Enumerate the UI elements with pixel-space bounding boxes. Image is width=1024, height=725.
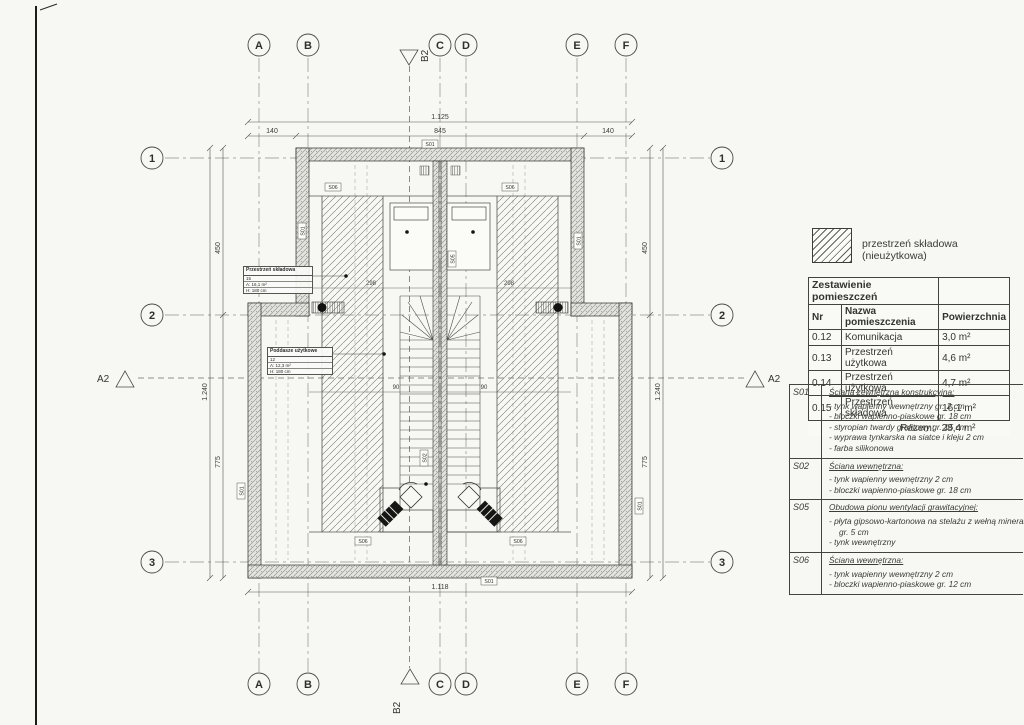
wall-tag-label: S01 bbox=[425, 142, 434, 148]
grid-label: E bbox=[573, 679, 580, 691]
scan-edge-artifact bbox=[36, 4, 57, 725]
note-title: Ściana wewnętrzna: bbox=[829, 461, 1019, 472]
table-title-spacer bbox=[939, 278, 1010, 305]
cell-nr: 0.13 bbox=[809, 346, 842, 371]
dim-label: 140 bbox=[266, 128, 278, 135]
grid-label: C bbox=[436, 40, 444, 52]
grid-label: 2 bbox=[149, 310, 155, 322]
note-code: S02 bbox=[790, 459, 822, 500]
grid-label: C bbox=[436, 679, 444, 691]
cell-nr: 0.12 bbox=[809, 330, 842, 346]
grid-label: 3 bbox=[719, 557, 725, 569]
note-code: S05 bbox=[790, 500, 822, 551]
note-code: S06 bbox=[790, 553, 822, 594]
grid-label: 2 bbox=[719, 310, 725, 322]
dim-label: 775 bbox=[215, 456, 222, 468]
note-section-s02: S02 Ściana wewnętrzna: - tynk wapienny w… bbox=[790, 459, 1023, 501]
note-line: gr. 5 cm bbox=[829, 527, 1024, 538]
section-label-b2-top: B2 bbox=[420, 49, 431, 62]
wall-tag-label: S06 bbox=[358, 539, 367, 545]
cell-area: 3,0 m² bbox=[939, 330, 1010, 346]
table-header-row: Nr Nazwa pomieszczenia Powierzchnia bbox=[809, 305, 1010, 330]
room-box-title: Przestrzeń składowa bbox=[244, 267, 312, 276]
dim-label: 450 bbox=[215, 242, 222, 254]
note-section-s05: S05 Obudowa pionu wentylacji grawitacyjn… bbox=[790, 500, 1023, 552]
dim-label: 90 bbox=[393, 385, 400, 391]
chair-right bbox=[458, 482, 481, 508]
note-line: - wyprawa tynkarska na siatce i kleju 2 … bbox=[829, 432, 1019, 443]
wall-right-upper bbox=[571, 148, 584, 316]
dim-label: 1.240 bbox=[655, 383, 662, 401]
table-title: Zestawienie pomieszczeń bbox=[809, 278, 939, 305]
note-line: - tynk wewnętrzny bbox=[829, 537, 1024, 548]
note-line: - styropian twardy grafitowy gr. 15 cm bbox=[829, 422, 1019, 433]
dim-label: 775 bbox=[642, 456, 649, 468]
note-title: Obudowa pionu wentylacji grawitacyjnej: bbox=[829, 502, 1024, 513]
note-line: - tynk wapienny wewnętrzny gr. 2 cm bbox=[829, 401, 1019, 412]
section-label-a2-right: A2 bbox=[768, 374, 781, 385]
vent-shaft-right bbox=[536, 302, 568, 313]
dim-label: 1.118 bbox=[432, 584, 449, 591]
dim-label: 1.240 bbox=[202, 383, 209, 401]
dim-label: 90 bbox=[481, 385, 488, 391]
dim-label: 845 bbox=[434, 128, 446, 135]
note-line: - bloczki wapienno-piaskowe gr. 18 cm bbox=[829, 485, 1019, 496]
col-header-nr: Nr bbox=[809, 305, 842, 330]
note-line: - tynk wapienny wewnętrzny 2 cm bbox=[829, 569, 1019, 580]
grid-label: E bbox=[573, 40, 580, 52]
cell-area: 4,6 m² bbox=[939, 346, 1010, 371]
wall-tag-label: S06 bbox=[513, 539, 522, 545]
wall-tag-label: S01 bbox=[240, 486, 246, 495]
wall-notes: S01 Ściana zewnętrzna konstrukcyjna: - t… bbox=[789, 384, 1023, 595]
grid-label: B bbox=[304, 679, 312, 691]
grid-label: A bbox=[255, 679, 263, 691]
grid-label: 1 bbox=[149, 153, 155, 165]
wall-tag-label: S06 bbox=[328, 185, 337, 191]
dim-label: 140 bbox=[602, 128, 614, 135]
col-header-area: Powierzchnia bbox=[939, 305, 1010, 330]
wall-tag-label: S01 bbox=[577, 236, 583, 245]
col-header-name: Nazwa pomieszczenia bbox=[842, 305, 939, 330]
note-title: Ściana zewnętrzna konstrukcyjna: bbox=[829, 387, 1019, 398]
scanned-floor-plan-page: { "plan": { "grid_cols": [{"label":"A"},… bbox=[0, 0, 1024, 725]
grid-label: B bbox=[304, 40, 312, 52]
wall-tag-label: S06 bbox=[505, 185, 514, 191]
wall-tag-label: S05 bbox=[451, 254, 457, 263]
legend-label: przestrzeń składowa (nieużytkowa) bbox=[862, 238, 1017, 262]
wall-tag-label: S01 bbox=[484, 579, 493, 585]
note-line: - płyta gipsowo-kartonowa na stelażu z w… bbox=[829, 516, 1024, 527]
room-box-title: Poddasze użytkowe bbox=[268, 348, 332, 357]
table-row: 0.13 Przestrzeń użytkowa 4,6 m² bbox=[809, 346, 1010, 371]
vent-shaft-left bbox=[312, 302, 344, 313]
room-annotation-box-attic: Poddasze użytkowe 12 A: 12,3 m² H: 180 c… bbox=[267, 347, 333, 375]
note-line: - bloczki wapienno-piaskowe gr. 18 cm bbox=[829, 411, 1019, 422]
section-label-a2-left: A2 bbox=[97, 374, 110, 385]
section-label-b2-bottom: B2 bbox=[392, 701, 403, 714]
note-code: S01 bbox=[790, 385, 822, 458]
cell-name: Przestrzeń użytkowa bbox=[842, 346, 939, 371]
dim-label: 1.125 bbox=[431, 114, 449, 121]
wall-tag-label: S01 bbox=[301, 226, 307, 235]
grid-label: 3 bbox=[149, 557, 155, 569]
note-line: - farba silikonowa bbox=[829, 443, 1019, 454]
grid-label: D bbox=[462, 679, 470, 691]
table-row: 0.12 Komunikacja 3,0 m² bbox=[809, 330, 1010, 346]
room-annotation-box-storage: Przestrzeń składowa 15 A: 16,1 m² H: 180… bbox=[243, 266, 313, 294]
room-box-height: H: 180 cm bbox=[244, 288, 312, 293]
note-section-s01: S01 Ściana zewnętrzna konstrukcyjna: - t… bbox=[790, 385, 1023, 459]
chair-left bbox=[399, 482, 422, 508]
wall-bottom bbox=[248, 565, 632, 578]
wall-right-lower bbox=[619, 303, 632, 578]
note-line: - bloczki wapienno-piaskowe gr. 12 cm bbox=[829, 579, 1019, 590]
grid-label: F bbox=[623, 679, 630, 691]
grid-label: D bbox=[462, 40, 470, 52]
note-title: Ściana wewnętrzna: bbox=[829, 555, 1019, 566]
cell-name: Komunikacja bbox=[842, 330, 939, 346]
wall-tag-label: S01 bbox=[638, 501, 644, 510]
note-section-s06: S06 Ściana wewnętrzna: - tynk wapienny w… bbox=[790, 553, 1023, 594]
dim-label: 450 bbox=[642, 242, 649, 254]
grid-label: F bbox=[623, 40, 630, 52]
room-box-height: H: 180 cm bbox=[268, 369, 332, 374]
wall-tag-label: S02 bbox=[423, 453, 429, 462]
note-line: - tynk wapienny wewnętrzny 2 cm bbox=[829, 474, 1019, 485]
grid-label: 1 bbox=[719, 153, 725, 165]
wall-left-lower bbox=[248, 303, 261, 578]
storage-hatch-swatch bbox=[812, 228, 852, 263]
table-title-row: Zestawienie pomieszczeń bbox=[809, 278, 1010, 305]
bed-left bbox=[390, 203, 433, 270]
grid-label: A bbox=[255, 40, 263, 52]
wall-top bbox=[296, 148, 584, 161]
